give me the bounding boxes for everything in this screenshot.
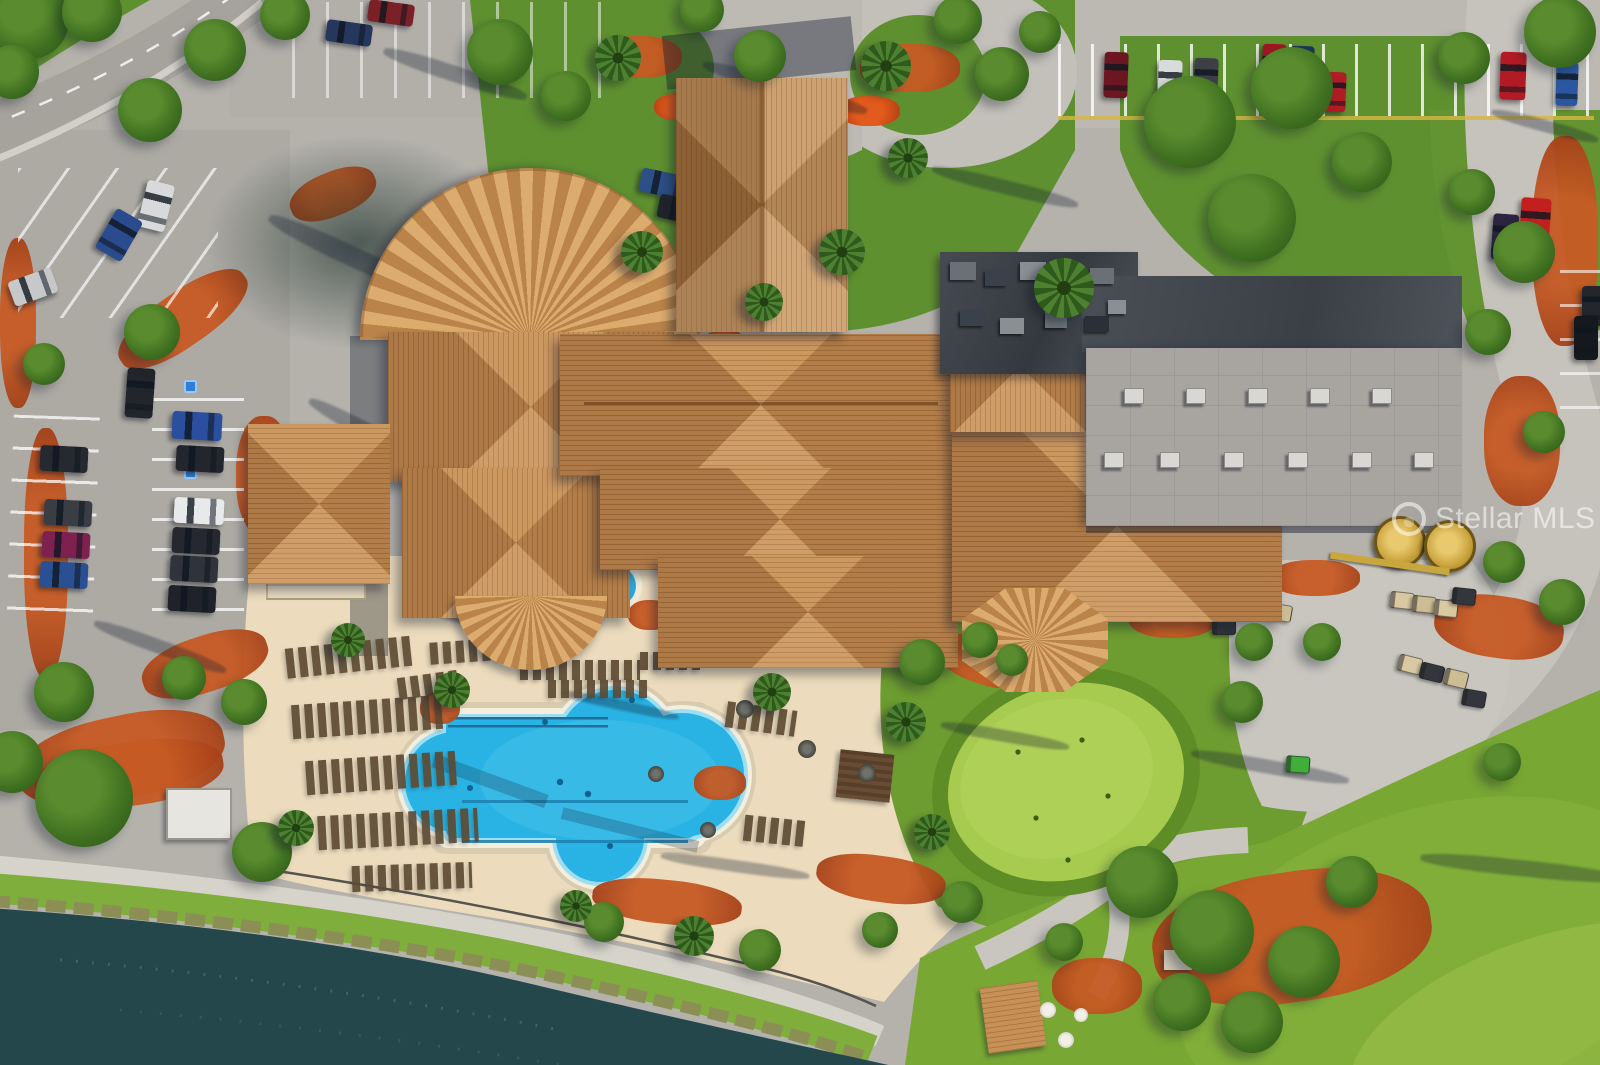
tree-canopy [1153, 973, 1211, 1031]
palm-tree [745, 283, 783, 321]
tree-canopy [996, 644, 1028, 676]
tree-canopy [1303, 623, 1341, 661]
tree-canopy [1144, 76, 1236, 168]
stellar-mls-logo-icon [1392, 502, 1426, 536]
palm-tree [861, 41, 911, 91]
palm-tree [434, 672, 470, 708]
tree-canopy [739, 929, 781, 971]
tree-canopy [1524, 0, 1596, 68]
tree-canopy [35, 749, 133, 847]
tree-canopy [62, 0, 122, 42]
tree-canopy [1251, 47, 1333, 129]
tree-canopy [1483, 743, 1521, 781]
tree-canopy [899, 639, 945, 685]
tree-canopy [1221, 681, 1263, 723]
tree-canopy [1483, 541, 1525, 583]
tree-canopy [541, 71, 591, 121]
palm-tree [278, 810, 314, 846]
tree-canopy [934, 0, 982, 44]
tree-canopy [1045, 923, 1083, 961]
tree-canopy [734, 30, 786, 82]
tree-canopy [124, 304, 180, 360]
tree-canopy [162, 656, 206, 700]
tree-canopy [1449, 169, 1495, 215]
tree-canopy [1235, 623, 1273, 661]
palm-tree [819, 229, 865, 275]
palm-tree [331, 623, 365, 657]
tree-canopy [1326, 856, 1378, 908]
tree-canopy [975, 47, 1029, 101]
palm-tree [914, 814, 950, 850]
tree-canopy [1465, 309, 1511, 355]
palm-tree [753, 673, 791, 711]
tree-canopy [1539, 579, 1585, 625]
tree-canopy [1170, 890, 1254, 974]
watermark-text: Stellar MLS [1435, 502, 1596, 536]
tree-canopy [1493, 221, 1555, 283]
tree-canopy [1523, 411, 1565, 453]
watermark: Stellar MLS [1392, 502, 1596, 536]
tree-canopy [1438, 32, 1490, 84]
tree-canopy [1221, 991, 1283, 1053]
tree-canopy [1208, 174, 1296, 262]
vegetation-layer [0, 0, 1600, 1065]
palm-tree [621, 231, 663, 273]
palm-tree [888, 138, 928, 178]
tree-canopy [260, 0, 310, 40]
tree-canopy [1019, 11, 1061, 53]
aerial-photo-scene: Stellar MLS [0, 0, 1600, 1065]
tree-canopy [34, 662, 94, 722]
tree-canopy [1332, 132, 1392, 192]
tree-canopy [118, 78, 182, 142]
palm-tree [1034, 258, 1094, 318]
tree-canopy [680, 0, 724, 32]
tree-canopy [962, 622, 998, 658]
palm-tree [674, 916, 714, 956]
palm-tree [595, 35, 641, 81]
palm-tree [886, 702, 926, 742]
tree-canopy [221, 679, 267, 725]
tree-canopy [467, 19, 533, 85]
tree-canopy [184, 19, 246, 81]
tree-canopy [941, 881, 983, 923]
palm-tree [560, 890, 592, 922]
tree-canopy [23, 343, 65, 385]
tree-canopy [1106, 846, 1178, 918]
tree-canopy [862, 912, 898, 948]
tree-canopy [1268, 926, 1340, 998]
